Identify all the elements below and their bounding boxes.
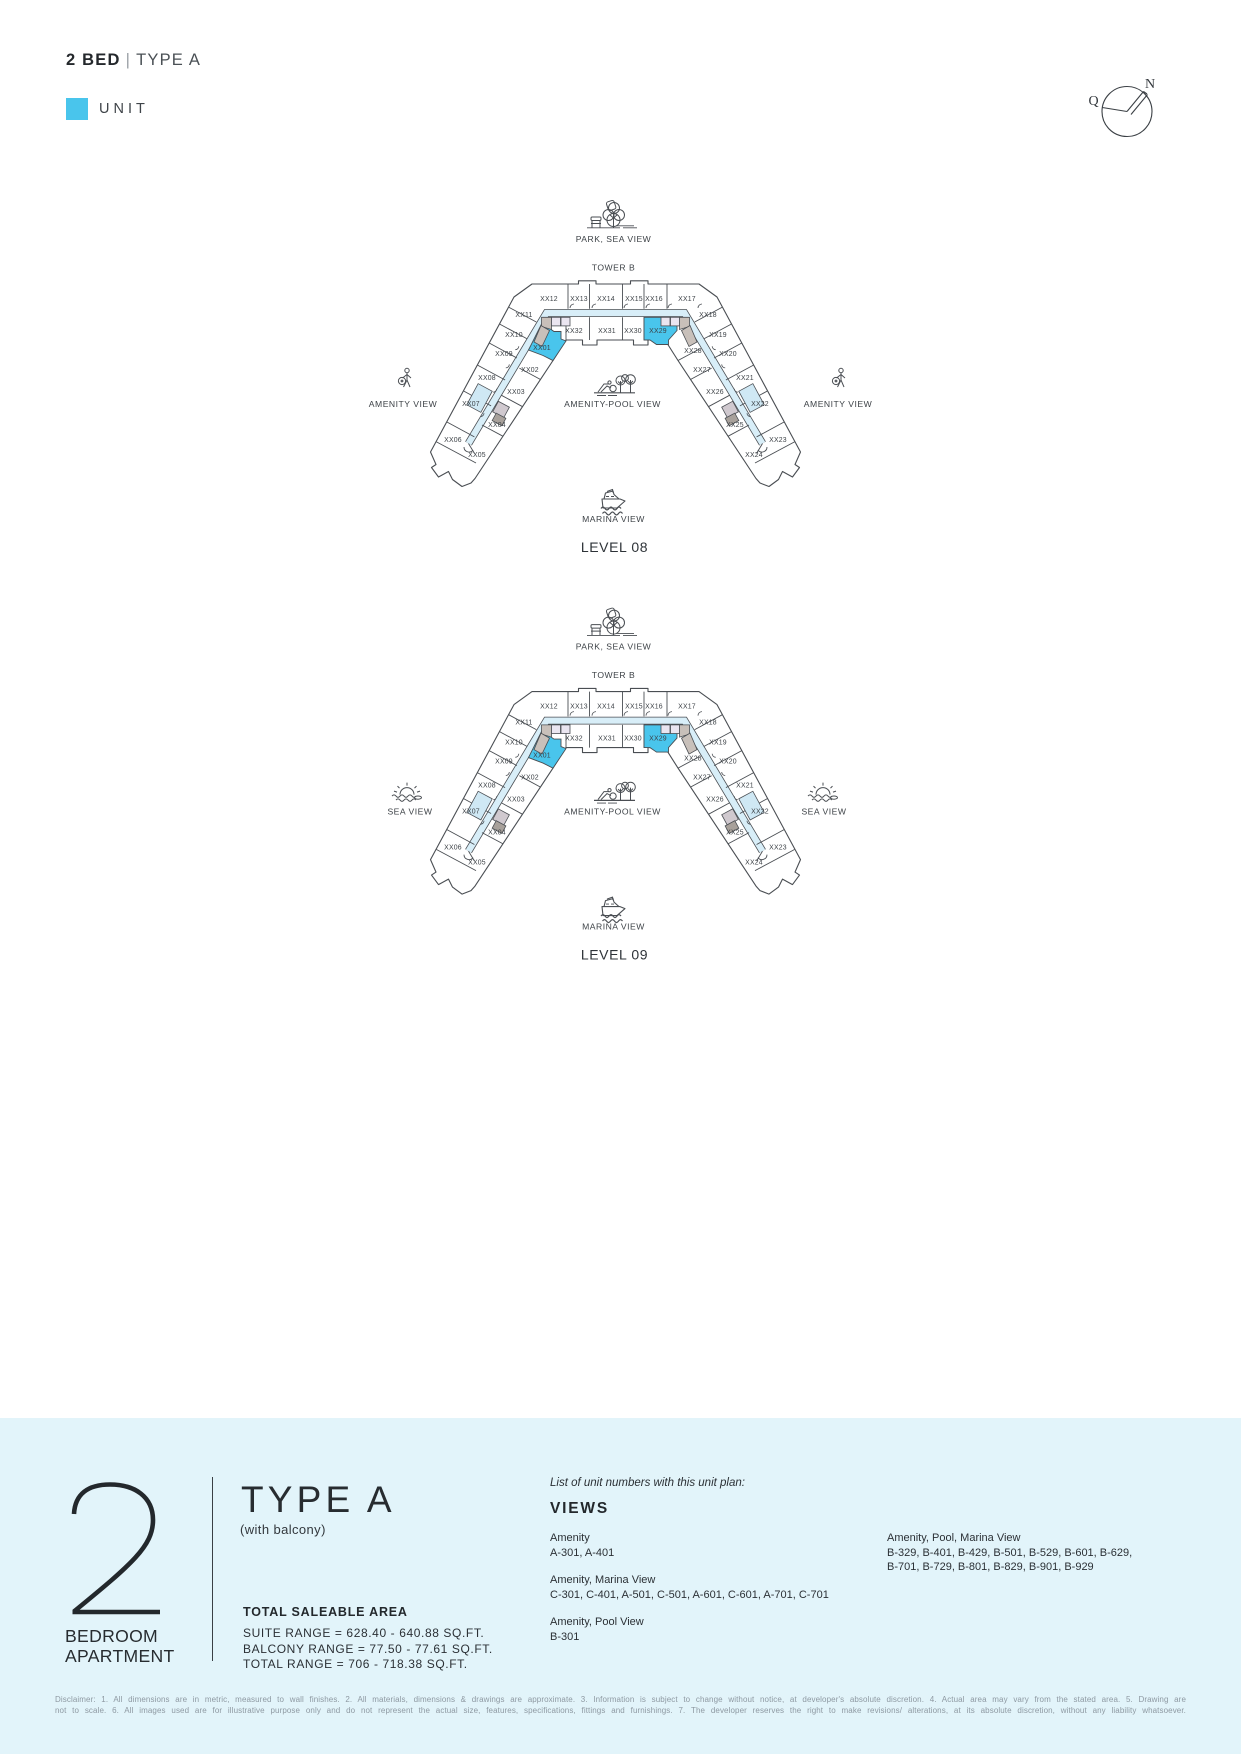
svg-text:MARINA VIEW: MARINA VIEW	[582, 922, 645, 932]
svg-text:XX27: XX27	[693, 367, 711, 374]
svg-text:XX14: XX14	[597, 296, 615, 303]
svg-text:XX29: XX29	[649, 328, 667, 335]
svg-text:XX30: XX30	[624, 736, 642, 743]
svg-text:XX13: XX13	[570, 296, 588, 303]
svg-text:XX26: XX26	[706, 389, 724, 396]
svg-text:XX01: XX01	[533, 345, 551, 352]
svg-text:XX25: XX25	[726, 830, 744, 837]
svg-text:XX24: XX24	[745, 452, 763, 459]
svg-text:XX28: XX28	[684, 756, 702, 763]
svg-text:AMENITY-POOL VIEW: AMENITY-POOL VIEW	[564, 807, 661, 817]
svg-text:XX20: XX20	[719, 351, 737, 358]
svg-text:XX11: XX11	[515, 720, 532, 727]
svg-text:XX08: XX08	[478, 783, 496, 790]
svg-text:XX05: XX05	[468, 452, 486, 459]
svg-text:XX19: XX19	[709, 332, 727, 339]
svg-text:AMENITY VIEW: AMENITY VIEW	[804, 399, 873, 409]
svg-text:XX16: XX16	[645, 704, 663, 711]
svg-text:XX32: XX32	[565, 328, 583, 335]
svg-text:XX09: XX09	[495, 351, 513, 358]
svg-text:XX09: XX09	[495, 759, 513, 766]
svg-text:XX12: XX12	[540, 296, 558, 303]
svg-text:XX20: XX20	[719, 759, 737, 766]
svg-text:XX17: XX17	[678, 296, 696, 303]
svg-text:XX22: XX22	[751, 401, 769, 408]
svg-text:XX24: XX24	[745, 860, 763, 867]
svg-text:XX12: XX12	[540, 704, 558, 711]
svg-text:XX26: XX26	[706, 797, 724, 804]
svg-text:XX27: XX27	[693, 775, 711, 782]
svg-text:XX30: XX30	[624, 328, 642, 335]
svg-text:XX31: XX31	[598, 736, 616, 743]
svg-text:PARK, SEA VIEW: PARK, SEA VIEW	[576, 234, 652, 244]
svg-text:LEVEL 08: LEVEL 08	[581, 539, 648, 555]
svg-text:XX25: XX25	[726, 422, 744, 429]
svg-text:XX18: XX18	[699, 720, 717, 727]
svg-text:XX16: XX16	[645, 296, 663, 303]
svg-text:XX06: XX06	[444, 845, 462, 852]
svg-text:LEVEL 09: LEVEL 09	[581, 947, 648, 963]
svg-text:AMENITY VIEW: AMENITY VIEW	[369, 399, 438, 409]
svg-text:XX17: XX17	[678, 704, 696, 711]
svg-text:XX31: XX31	[598, 328, 616, 335]
svg-text:XX10: XX10	[505, 740, 523, 747]
svg-text:XX02: XX02	[521, 367, 539, 374]
svg-text:XX08: XX08	[478, 375, 496, 382]
svg-text:XX19: XX19	[709, 740, 727, 747]
svg-text:XX03: XX03	[507, 797, 525, 804]
svg-text:XX28: XX28	[684, 348, 702, 355]
svg-text:XX15: XX15	[625, 704, 643, 711]
svg-text:XX21: XX21	[736, 783, 754, 790]
svg-text:XX13: XX13	[570, 704, 588, 711]
svg-text:XX18: XX18	[699, 312, 717, 319]
svg-text:XX10: XX10	[505, 332, 523, 339]
svg-text:XX03: XX03	[507, 389, 525, 396]
svg-text:XX29: XX29	[649, 736, 667, 743]
svg-text:XX11: XX11	[515, 312, 532, 319]
svg-text:SEA VIEW: SEA VIEW	[387, 807, 432, 817]
svg-text:MARINA VIEW: MARINA VIEW	[582, 514, 645, 524]
svg-text:AMENITY-POOL VIEW: AMENITY-POOL VIEW	[564, 399, 661, 409]
svg-text:XX23: XX23	[769, 437, 787, 444]
svg-text:XX14: XX14	[597, 704, 615, 711]
svg-text:XX04: XX04	[488, 830, 506, 837]
svg-text:XX02: XX02	[521, 775, 539, 782]
svg-text:XX32: XX32	[565, 736, 583, 743]
svg-text:XX05: XX05	[468, 860, 486, 867]
svg-text:PARK, SEA VIEW: PARK, SEA VIEW	[576, 642, 652, 652]
svg-text:TOWER B: TOWER B	[592, 263, 635, 273]
svg-text:XX07: XX07	[462, 809, 480, 816]
svg-text:TOWER B: TOWER B	[592, 670, 635, 680]
svg-text:XX04: XX04	[488, 422, 506, 429]
svg-text:XX06: XX06	[444, 437, 462, 444]
svg-text:XX01: XX01	[533, 753, 551, 760]
svg-text:N: N	[1145, 77, 1155, 92]
svg-text:XX15: XX15	[625, 296, 643, 303]
svg-text:XX22: XX22	[751, 809, 769, 816]
svg-text:XX07: XX07	[462, 401, 480, 408]
svg-text:SEA VIEW: SEA VIEW	[801, 807, 846, 817]
svg-text:Q: Q	[1088, 94, 1098, 109]
svg-text:XX21: XX21	[736, 375, 754, 382]
svg-text:XX23: XX23	[769, 845, 787, 852]
